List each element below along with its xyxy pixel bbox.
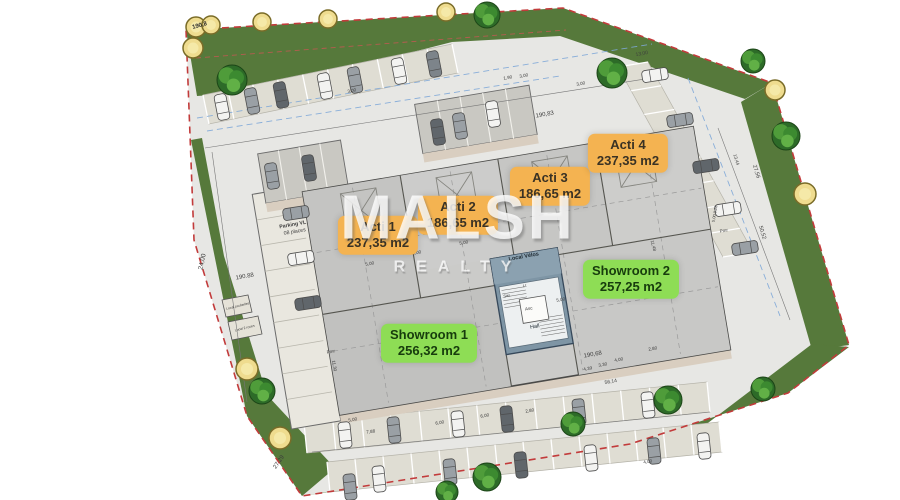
car [584, 444, 599, 471]
tree [561, 412, 585, 436]
car-body [451, 410, 466, 437]
bush [794, 183, 816, 205]
bush-inner [323, 14, 333, 24]
bush-inner [770, 85, 781, 96]
bush [319, 10, 337, 28]
tree [772, 122, 800, 150]
unit-label-acti-3: Acti 3 186,65 m2 [510, 167, 590, 206]
unit-name: Showroom 2 [592, 263, 670, 279]
tree-foliage [781, 135, 794, 148]
unit-label-acti-2: Acti 2 186,65 m2 [418, 196, 498, 235]
bush-inner [257, 17, 267, 27]
unit-area: 186,65 m2 [519, 186, 581, 202]
bush-inner [274, 432, 286, 444]
unit-area: 237,35 m2 [597, 153, 659, 169]
site-plan-canvas: 190,824,00190.88190,83190,6856,1427,2927… [0, 0, 900, 500]
car [697, 432, 712, 459]
car [338, 421, 353, 448]
bush-inner [206, 20, 216, 30]
unit-label-acti-1: Acti 1 237,35 m2 [338, 216, 418, 255]
bush-inner [441, 7, 451, 17]
car [387, 416, 402, 443]
bush [253, 13, 271, 31]
tree [473, 463, 501, 491]
tree [654, 386, 682, 414]
car [451, 410, 466, 437]
tree [597, 58, 627, 88]
tree-foliage [607, 72, 621, 86]
unit-name: Showroom 1 [390, 327, 468, 343]
tree [249, 378, 275, 404]
car-body [584, 444, 599, 471]
bush-inner [241, 363, 253, 375]
bush-inner [188, 43, 199, 54]
car-body [387, 416, 402, 443]
unit-name: Acti 2 [427, 199, 489, 215]
unit-area: 257,25 m2 [592, 279, 670, 295]
unit-name: Acti 3 [519, 170, 581, 186]
tree [217, 65, 247, 95]
elevator-box [519, 295, 549, 323]
car [500, 405, 515, 432]
tree-foliage [482, 476, 495, 489]
tree-foliage [569, 423, 580, 434]
tree-foliage [663, 399, 676, 412]
car [641, 391, 656, 418]
site-plan: 190,824,00190.88190,83190,6856,1427,2927… [0, 0, 900, 500]
tree-foliage [257, 390, 269, 402]
unit-area: 237,35 m2 [347, 235, 409, 251]
unit-label-acti-4: Acti 4 237,35 m2 [588, 134, 668, 173]
unit-area: 186,65 m2 [427, 215, 489, 231]
car-body [500, 405, 515, 432]
car [514, 451, 529, 478]
unit-name: Acti 1 [347, 219, 409, 235]
car-body [697, 432, 712, 459]
car-body [372, 465, 387, 492]
tree [436, 481, 458, 500]
car [343, 473, 358, 500]
bush [437, 3, 455, 21]
tree-foliage [759, 388, 770, 399]
unit-label-showroom-1: Showroom 1 256,32 m2 [381, 324, 477, 363]
car-body [514, 451, 529, 478]
bush [765, 80, 785, 100]
unit-label-showroom-2: Showroom 2 257,25 m2 [583, 260, 679, 299]
car-body [338, 421, 353, 448]
tree [751, 377, 775, 401]
car-body [641, 391, 656, 418]
bush [236, 358, 258, 380]
tree-foliage [482, 14, 494, 26]
bush-inner [799, 188, 811, 200]
bush [269, 427, 291, 449]
unit-area: 256,32 m2 [390, 343, 468, 359]
car-body [343, 473, 358, 500]
tree-foliage [227, 79, 241, 93]
tree [474, 2, 500, 28]
unit-name: Acti 4 [597, 137, 659, 153]
tree-foliage [749, 60, 760, 71]
bush [183, 38, 203, 58]
car [372, 465, 387, 492]
tree [741, 49, 765, 73]
